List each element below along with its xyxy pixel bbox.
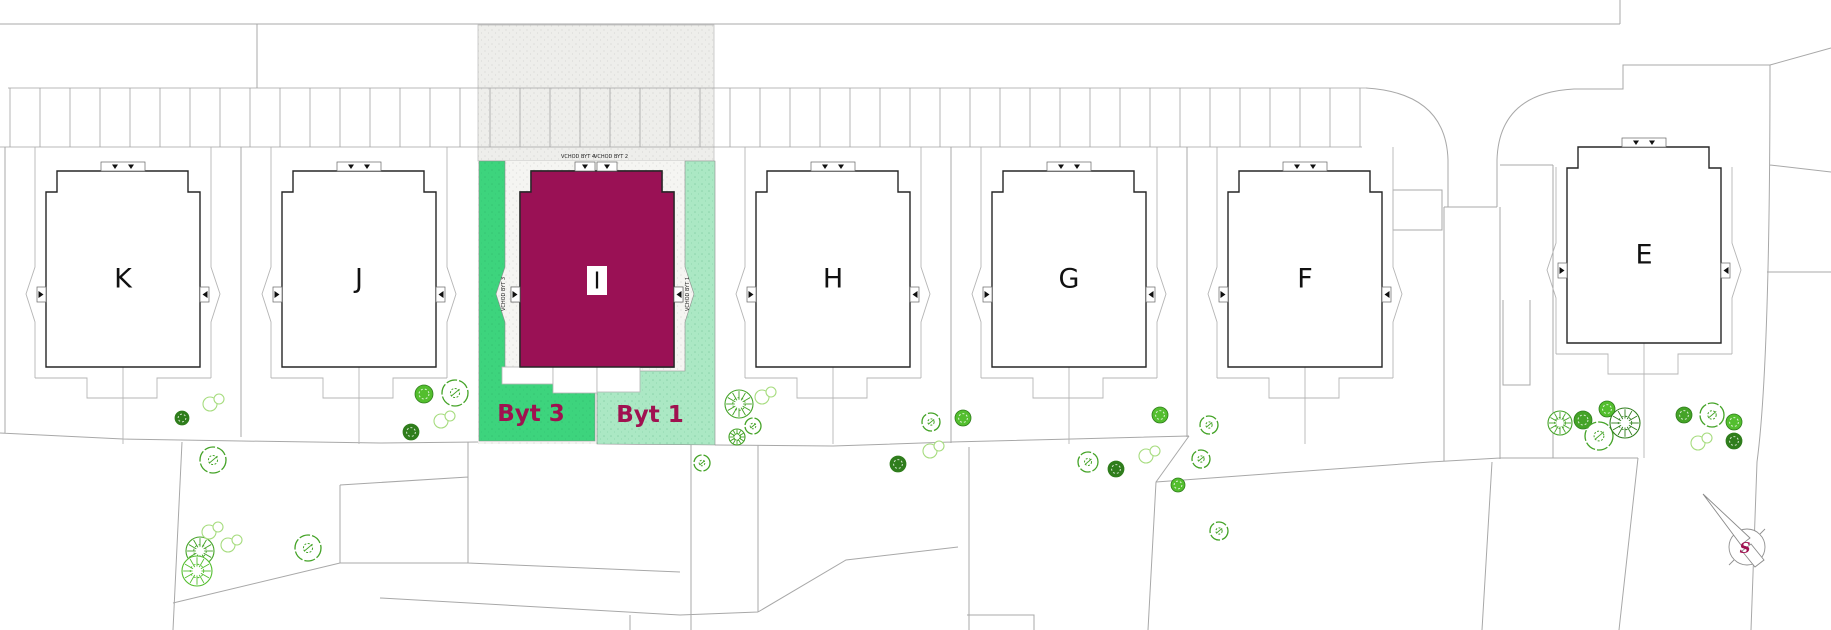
tree-icon — [729, 429, 745, 445]
tree-icon — [182, 556, 212, 586]
shrub-blob — [213, 522, 223, 532]
site-plan: KJHGFEVCHOD BYT 4VCHOD BYT 2VCHOD BYT 3V… — [0, 0, 1831, 630]
tree-icon — [434, 411, 455, 428]
unit-label-byt-3[interactable]: Byt 3 — [497, 401, 565, 427]
tree-icon — [745, 418, 761, 434]
tree-icon — [202, 522, 223, 539]
walkway-left-line — [736, 147, 745, 378]
tree-canopy — [1152, 407, 1168, 423]
entrance-label-byt1: VCHOD BYT 1 — [685, 277, 691, 311]
tree-icon — [403, 424, 419, 440]
site-plan-svg: KJHGFEVCHOD BYT 4VCHOD BYT 2VCHOD BYT 3V… — [0, 0, 1831, 630]
shrub-blob — [214, 394, 224, 404]
tree-icon — [175, 411, 189, 425]
tree-icon — [1152, 407, 1168, 423]
shrub-blob — [232, 535, 242, 545]
entrance-label-byt4: VCHOD BYT 4 — [561, 154, 595, 160]
tree-canopy — [175, 411, 189, 425]
entrance-label-byt3: VCHOD BYT 3 — [501, 277, 507, 311]
paved-area-top-texture — [478, 25, 714, 161]
shrub-blob — [445, 411, 455, 421]
shrub-blob — [1150, 446, 1160, 456]
tree-icon — [1726, 433, 1742, 449]
tree-icon — [1676, 407, 1692, 423]
tree-canopy — [890, 456, 906, 472]
tree-icon — [221, 535, 242, 552]
walkway-right-line — [921, 147, 930, 378]
tree-icon — [1700, 403, 1724, 427]
tree-icon — [922, 413, 940, 431]
byt1-patio — [597, 367, 640, 392]
top-entrance-box — [1283, 162, 1327, 171]
tree-canopy — [1171, 478, 1185, 492]
shrub-blob — [934, 441, 944, 451]
walkway-right-line — [211, 147, 220, 378]
tree-icon — [1548, 411, 1572, 435]
tree-icon — [694, 455, 710, 471]
tree-icon — [415, 385, 433, 403]
building-label-g: G — [1059, 264, 1080, 295]
walkway-left-line — [972, 147, 981, 378]
entrance-label-byt2: VCHOD BYT 2 — [594, 154, 628, 160]
compass-needle-icon — [1703, 494, 1750, 545]
building-label-e: E — [1635, 240, 1652, 271]
compass-north-label: S — [1740, 539, 1751, 557]
tree-icon — [1210, 522, 1228, 540]
tree-icon — [1171, 478, 1185, 492]
tree-canopy — [415, 385, 433, 403]
byt3-patio — [502, 367, 553, 384]
building-plot-f: F — [1208, 147, 1402, 444]
tree-icon — [442, 380, 468, 406]
top-entrance-box — [101, 162, 145, 171]
tree-canopy — [403, 424, 419, 440]
compass-tick — [1760, 529, 1765, 534]
building-label-k: K — [114, 264, 133, 295]
tree-icon — [755, 387, 776, 404]
tree-icon — [923, 441, 944, 458]
walkway-left-line — [1547, 167, 1556, 354]
tree-icon — [1691, 433, 1712, 450]
shrub-blob — [1702, 433, 1712, 443]
top-entrance-box — [1622, 138, 1666, 147]
unit-label-byt-1[interactable]: Byt 1 — [616, 402, 684, 428]
tree-canopy — [1108, 461, 1124, 477]
walkway-right-line — [1732, 167, 1741, 354]
tree-icon — [1192, 450, 1210, 468]
tree-icon — [1610, 408, 1640, 438]
building-plot-k: K — [26, 147, 220, 444]
tree-icon — [725, 390, 753, 418]
byt3-patio-lower — [553, 367, 597, 393]
tree-icon — [955, 410, 971, 426]
walkway-right-line — [1393, 147, 1402, 378]
shrub-blob — [766, 387, 776, 397]
building-label-h: H — [823, 264, 843, 295]
walkway-right-line — [447, 147, 456, 378]
tree-canopy — [955, 410, 971, 426]
top-entrance-box — [337, 162, 381, 171]
tree-canopy — [1726, 414, 1742, 430]
compass-tick — [1729, 560, 1734, 565]
tree-icon — [1200, 416, 1218, 434]
walkway-left-line — [262, 147, 271, 378]
building-label-j: J — [353, 264, 363, 295]
tree-canopy — [1726, 433, 1742, 449]
building-label-f: F — [1297, 264, 1313, 295]
top-entrance-box — [811, 162, 855, 171]
tree-icon — [1726, 414, 1742, 430]
building-plot-g: G — [972, 147, 1166, 444]
tree-icon — [1139, 446, 1160, 463]
tree-icon — [295, 535, 321, 561]
trees — [175, 380, 1742, 586]
top-entrance-box — [1047, 162, 1091, 171]
tree-icon — [203, 394, 224, 411]
tree-icon — [200, 447, 226, 473]
tree-icon — [1585, 422, 1613, 450]
walkway-left-line — [1208, 147, 1217, 378]
tree-canopy — [1676, 407, 1692, 423]
tree-icon — [890, 456, 906, 472]
tree-icon — [1108, 461, 1124, 477]
walkway-left-line — [26, 147, 35, 378]
building-label-i: I — [594, 269, 601, 295]
tree-icon — [1078, 452, 1098, 472]
walkway-right-line — [1157, 147, 1166, 378]
